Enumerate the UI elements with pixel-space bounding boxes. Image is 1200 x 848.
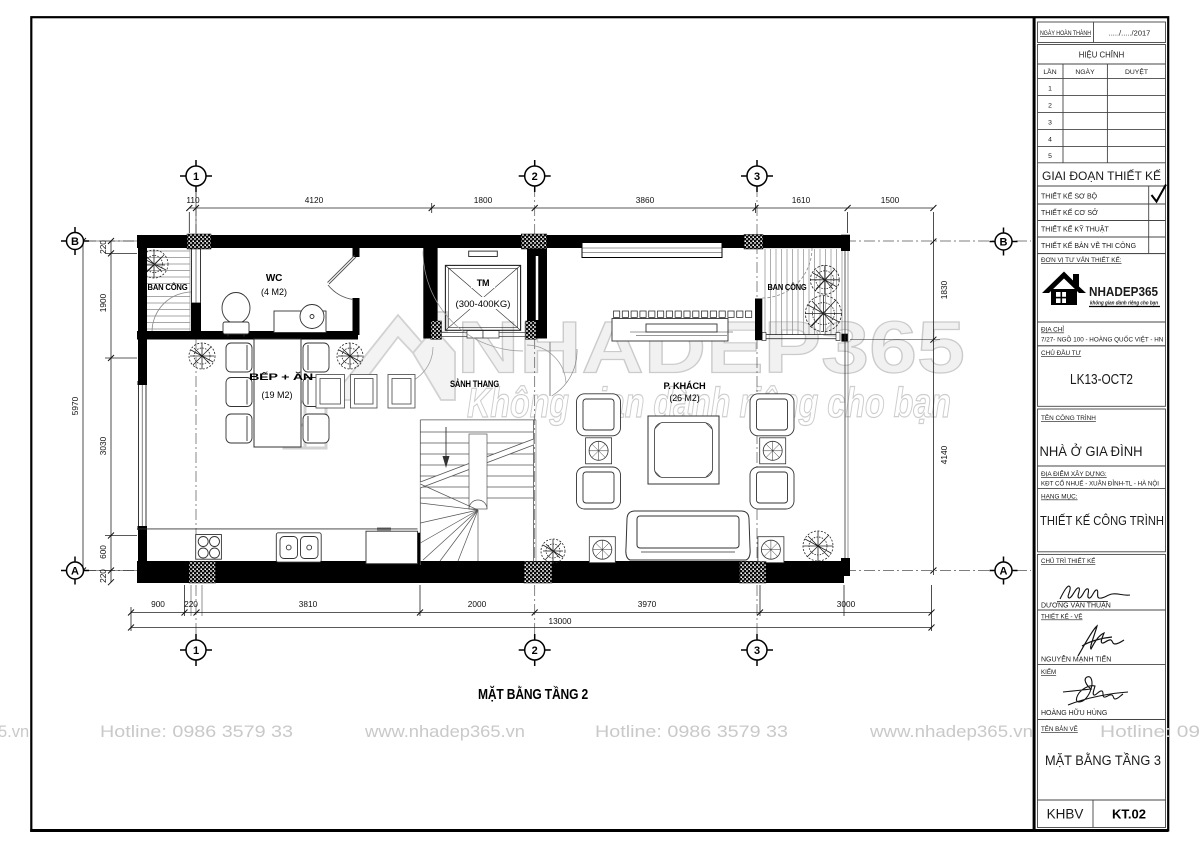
svg-text:110: 110	[186, 195, 200, 205]
svg-text:(26 M2): (26 M2)	[669, 393, 699, 403]
svg-text:4140: 4140	[939, 445, 949, 464]
svg-text:B: B	[1000, 237, 1008, 249]
svg-text:DƯƠNG VĂN THUẬN: DƯƠNG VĂN THUẬN	[1041, 601, 1111, 610]
svg-text:(300-400KG): (300-400KG)	[456, 299, 511, 310]
svg-text:HOÀNG HỮU HÙNG: HOÀNG HỮU HÙNG	[1041, 708, 1107, 717]
svg-text:600: 600	[98, 545, 108, 559]
svg-text:3: 3	[754, 645, 760, 657]
svg-text:3: 3	[1048, 120, 1052, 127]
svg-text:A: A	[71, 566, 79, 578]
svg-text:2: 2	[532, 171, 538, 183]
svg-text:CHỦ TRÌ THIẾT KẾ: CHỦ TRÌ THIẾT KẾ	[1041, 558, 1095, 565]
svg-text:2: 2	[1048, 103, 1052, 110]
svg-text:KĐT CỔ NHUẾ - XUÂN ĐỈNH-TL - H: KĐT CỔ NHUẾ - XUÂN ĐỈNH-TL - HÀ NỘI	[1041, 481, 1159, 488]
svg-text:5: 5	[1048, 153, 1052, 160]
svg-text:Hotline: 09: Hotline: 09	[1100, 723, 1200, 741]
svg-text:BẾP + ĂN: BẾP + ĂN	[249, 372, 314, 383]
svg-text:ĐỊA ĐIỂM XÂY DỰNG:: ĐỊA ĐIỂM XÂY DỰNG:	[1041, 469, 1107, 478]
svg-text:13000: 13000	[548, 616, 571, 626]
svg-text:P. KHÁCH: P. KHÁCH	[664, 381, 706, 392]
svg-text:BAN CÔNG: BAN CÔNG	[768, 281, 807, 292]
svg-text:www.nhadep365.vn: www.nhadep365.vn	[869, 723, 1033, 741]
svg-text:900: 900	[151, 599, 165, 609]
svg-text:DUYỆT: DUYỆT	[1125, 67, 1148, 76]
svg-text:3030: 3030	[98, 436, 108, 455]
svg-text:3970: 3970	[638, 599, 657, 609]
svg-text:2: 2	[532, 645, 538, 657]
svg-text:ĐỊA CHỈ: ĐỊA CHỈ	[1041, 325, 1064, 334]
svg-text:NHÀ Ở GIA ĐÌNH: NHÀ Ở GIA ĐÌNH	[1040, 444, 1143, 459]
svg-text:3: 3	[754, 171, 760, 183]
svg-text:1: 1	[1048, 86, 1052, 93]
svg-text:www.nhadep365.vn: www.nhadep365.vn	[364, 723, 525, 741]
svg-text:3860: 3860	[636, 195, 655, 205]
svg-text:...../...../2017: ...../...../2017	[1109, 29, 1151, 38]
svg-text:B: B	[71, 236, 79, 248]
svg-text:HIỆU CHỈNH: HIỆU CHỈNH	[1079, 51, 1124, 60]
svg-text:3000: 3000	[837, 599, 856, 609]
svg-text:MẶT BẰNG TẦNG 3: MẶT BẰNG TẦNG 3	[1045, 753, 1161, 768]
svg-text:THIẾT KẾ - VẼ: THIẾT KẾ - VẼ	[1041, 614, 1083, 621]
svg-text:Hotline: 0986 3579 33: Hotline: 0986 3579 33	[595, 723, 788, 741]
svg-text:5.vn: 5.vn	[0, 723, 29, 741]
svg-text:220: 220	[98, 240, 108, 254]
svg-text:NGÀY: NGÀY	[1075, 67, 1095, 76]
svg-text:Hotline: 0986 3579 33: Hotline: 0986 3579 33	[100, 723, 293, 741]
svg-text:1830: 1830	[939, 280, 949, 299]
svg-text:WC: WC	[266, 273, 282, 284]
svg-text:1500: 1500	[881, 195, 900, 205]
svg-text:MẶT BẰNG TẦNG 2: MẶT BẰNG TẦNG 2	[478, 685, 588, 703]
svg-text:3810: 3810	[299, 599, 318, 609]
svg-text:1610: 1610	[792, 195, 811, 205]
svg-text:KT.02: KT.02	[1112, 807, 1146, 822]
svg-text:NGÀY HOÀN THÀNH: NGÀY HOÀN THÀNH	[1040, 28, 1091, 37]
svg-text:2000: 2000	[468, 599, 487, 609]
svg-text:LK13-OCT2: LK13-OCT2	[1070, 372, 1133, 388]
svg-text:220: 220	[98, 569, 108, 583]
svg-text:HẠNG MỤC:: HẠNG MỤC:	[1041, 494, 1078, 501]
svg-text:KHBV: KHBV	[1047, 807, 1084, 822]
svg-text:THIẾT KẾ CÔNG TRÌNH: THIẾT KẾ CÔNG TRÌNH	[1040, 513, 1164, 528]
svg-text:1900: 1900	[98, 293, 108, 312]
svg-text:không gian dành riêng cho bạn: không gian dành riêng cho bạn	[1090, 301, 1158, 307]
svg-text:220: 220	[184, 599, 198, 609]
svg-text:(19 M2): (19 M2)	[261, 390, 292, 400]
svg-text:4120: 4120	[305, 195, 324, 205]
svg-text:GIAI ĐOẠN THIẾT KẾ: GIAI ĐOẠN THIẾT KẾ	[1042, 168, 1161, 183]
svg-text:NHADEP365: NHADEP365	[1089, 285, 1158, 299]
svg-text:A: A	[1000, 566, 1008, 578]
svg-text:(4 M2): (4 M2)	[261, 287, 287, 297]
svg-text:SẢNH THANG: SẢNH THANG	[450, 378, 499, 390]
svg-text:1: 1	[193, 645, 199, 657]
svg-text:BAN CÔNG: BAN CÔNG	[148, 281, 188, 292]
svg-text:1800: 1800	[474, 195, 493, 205]
svg-text:TÊN CÔNG TRÌNH: TÊN CÔNG TRÌNH	[1041, 413, 1096, 422]
svg-text:1: 1	[193, 171, 199, 183]
svg-text:KIỂM: KIỂM	[1041, 669, 1056, 676]
svg-text:5970: 5970	[70, 396, 80, 415]
svg-text:TÊN BẢN VẼ: TÊN BẢN VẼ	[1041, 725, 1078, 733]
svg-text:4: 4	[1048, 137, 1052, 144]
svg-text:TM: TM	[477, 278, 490, 288]
